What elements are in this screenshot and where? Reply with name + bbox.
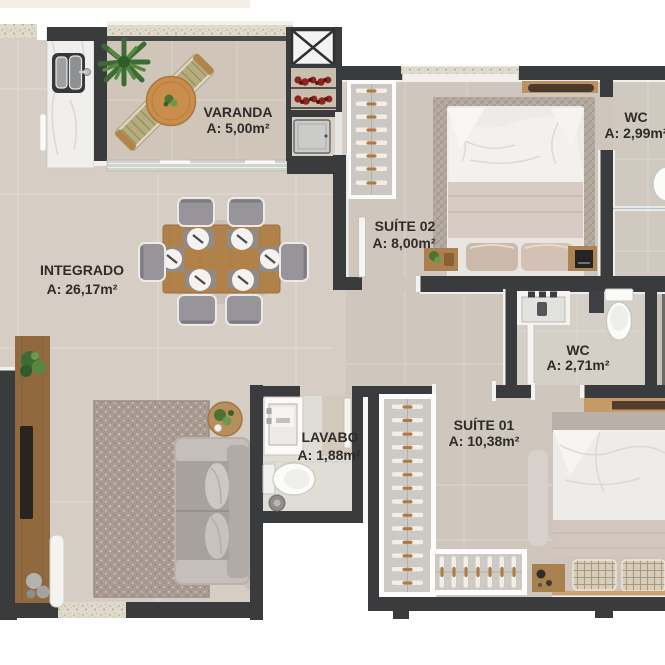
svg-text:SUÍTE 02: SUÍTE 02 [375,218,436,234]
svg-text:A: 26,17m²: A: 26,17m² [47,281,118,297]
svg-text:LAVABO: LAVABO [301,429,358,445]
svg-text:A: 10,38m²: A: 10,38m² [449,433,520,449]
svg-text:INTEGRADO: INTEGRADO [40,262,124,278]
svg-text:VARANDA: VARANDA [204,104,273,120]
svg-text:SUÍTE 01: SUÍTE 01 [454,417,515,433]
svg-text:A: 1,88m²: A: 1,88m² [297,447,360,463]
svg-text:WC: WC [566,342,589,358]
svg-text:A: 2,99m²: A: 2,99m² [604,125,665,141]
svg-text:A: 5,00m²: A: 5,00m² [206,120,269,136]
svg-text:A: 2,71m²: A: 2,71m² [546,357,609,373]
svg-text:WC: WC [624,109,647,125]
svg-text:A: 8,00m²: A: 8,00m² [372,235,435,251]
